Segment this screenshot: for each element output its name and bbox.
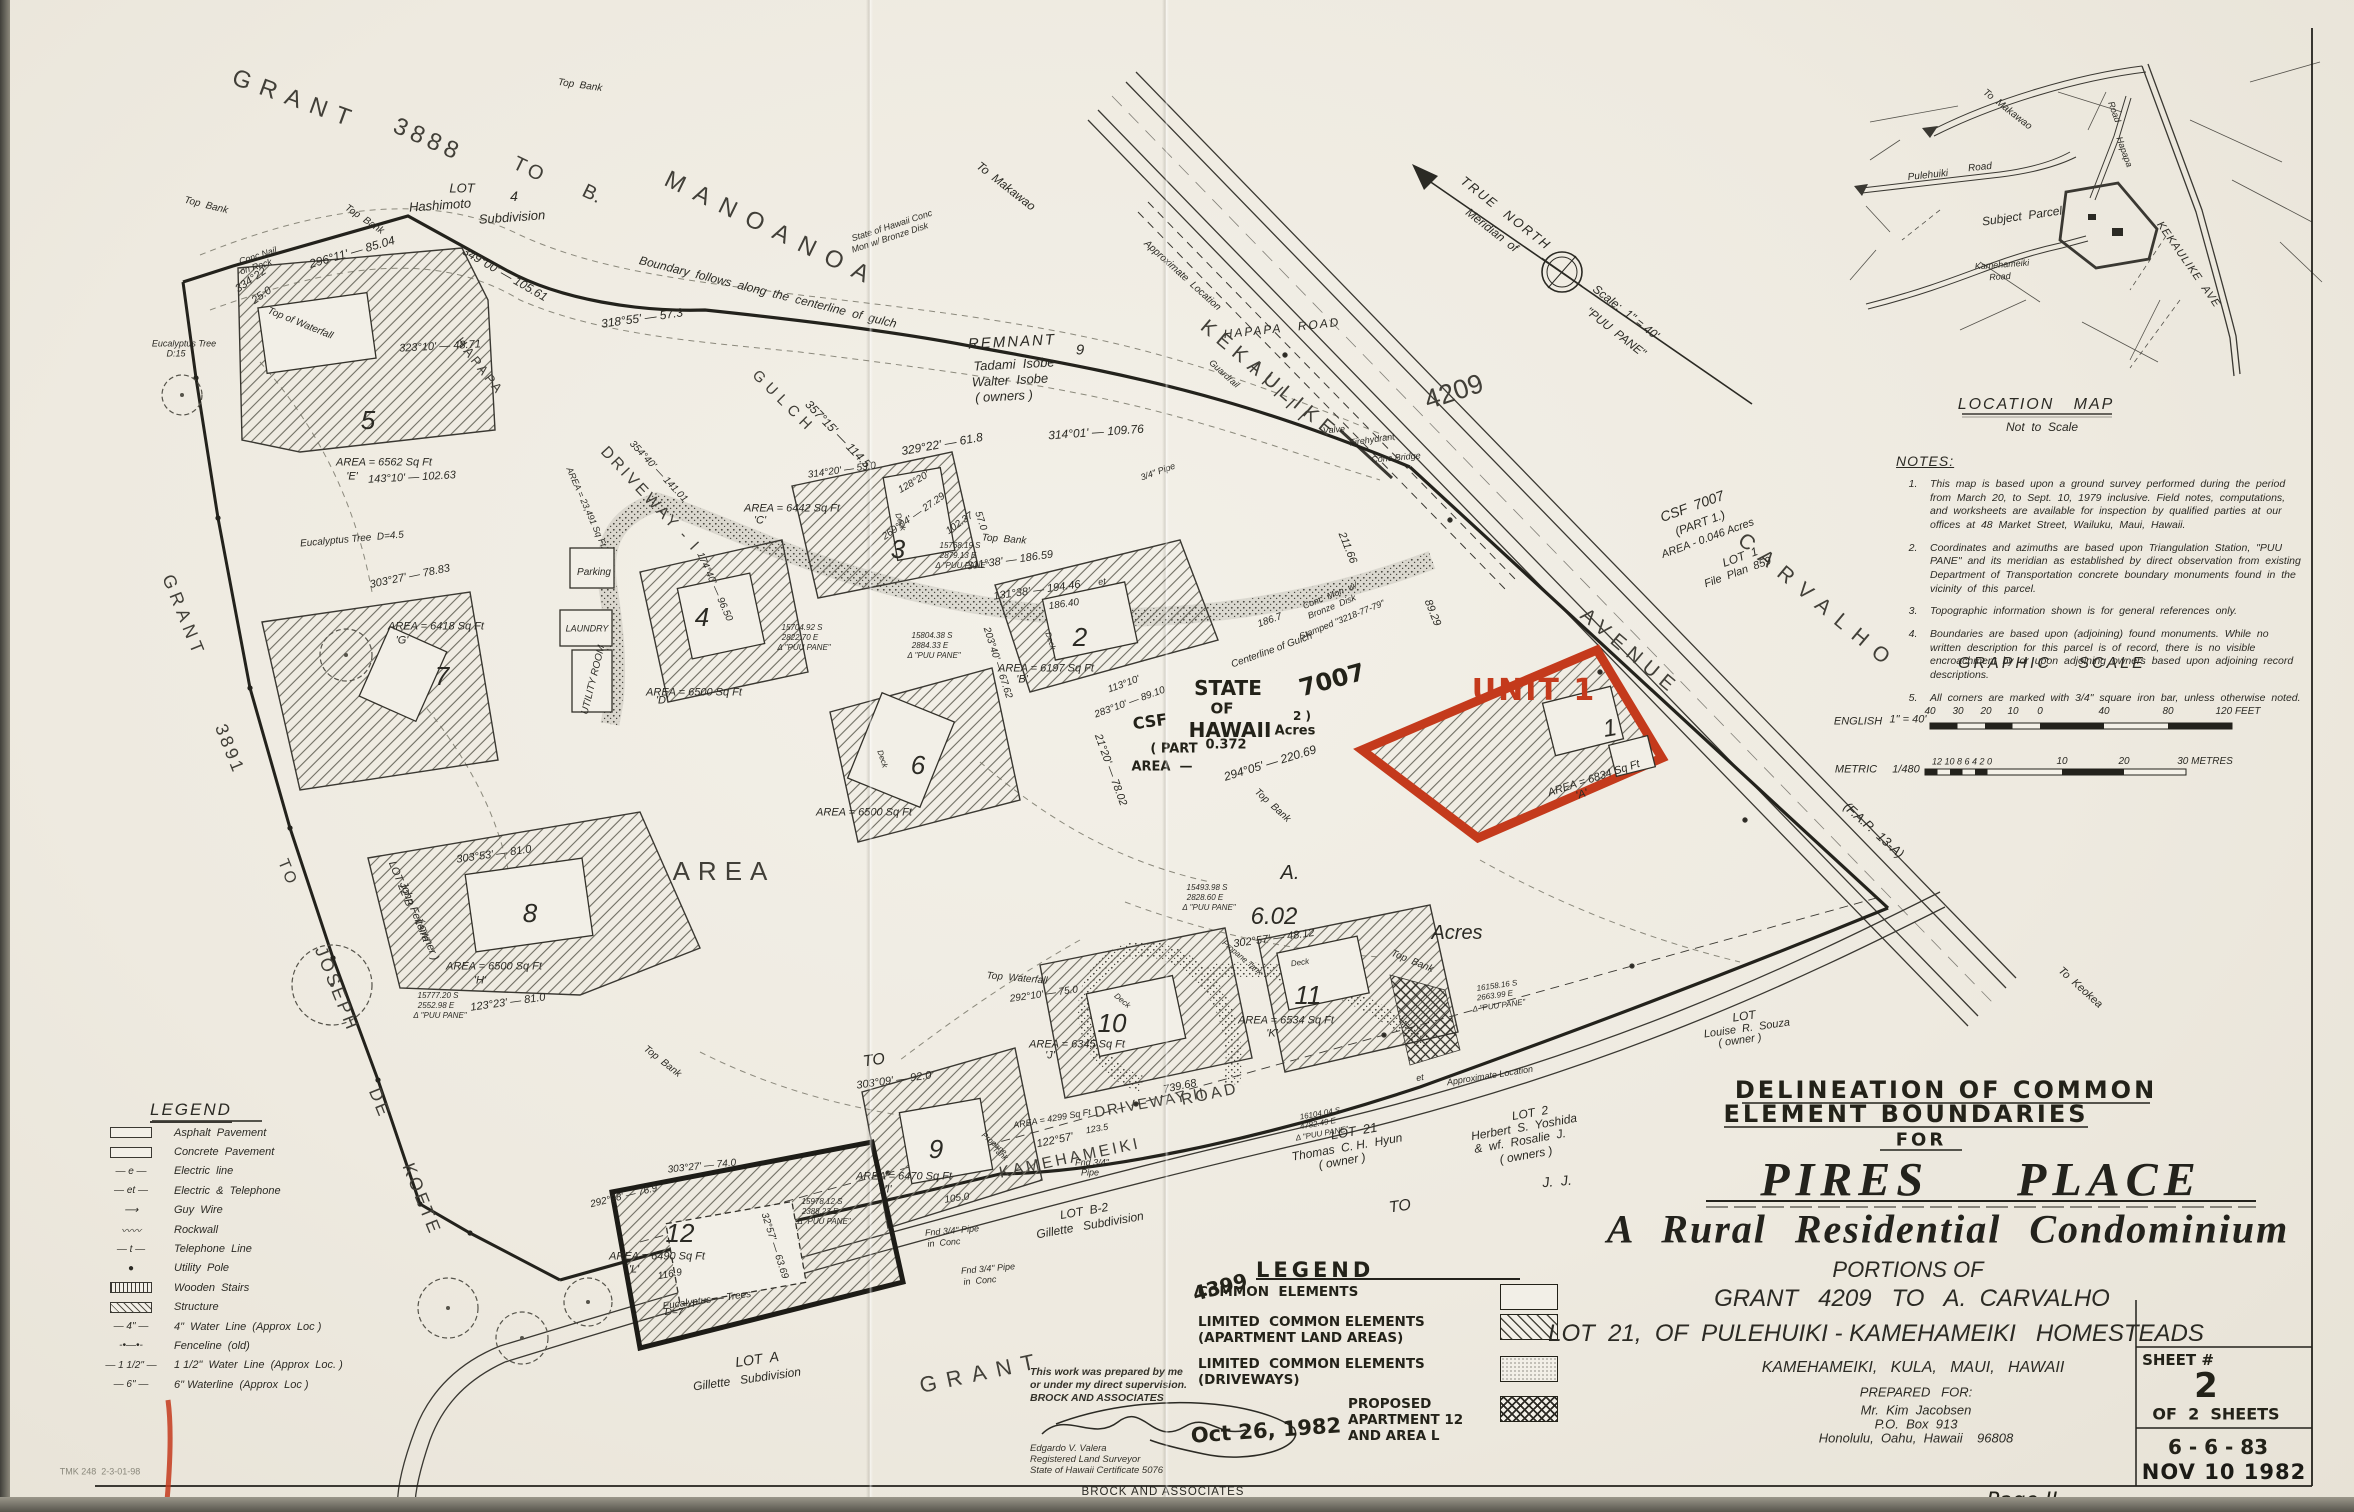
legend-label: Wooden Stairs xyxy=(174,1282,249,1294)
note-number: 1. xyxy=(1896,478,1930,533)
legend-label: Electric line xyxy=(174,1165,233,1177)
map-label: et xyxy=(1098,577,1107,587)
fenceline-symbol: -•—•- xyxy=(88,1340,174,1351)
wooden-stairs-swatch xyxy=(110,1282,152,1293)
map-label: 15777.20 S xyxy=(418,992,459,1000)
title-for: FOR xyxy=(1896,1130,1946,1151)
map-label: OF xyxy=(1211,702,1234,717)
map-label: 4 xyxy=(695,604,709,630)
surveyor-line: BROCK AND ASSOCIATES xyxy=(1030,1392,1270,1405)
legend-label: Telephone Line xyxy=(174,1243,252,1255)
map-label: AREA = 6534 Sq Ft xyxy=(1238,1016,1334,1027)
map-label: 'K' xyxy=(1266,1029,1278,1040)
map-label: 'E' xyxy=(346,472,358,483)
lot-line: LOT 21, OF PULEHUIKI - KAMEHAMEIKI HOMES… xyxy=(1548,1320,2204,1348)
map-label: 15978.12 S xyxy=(802,1198,843,1206)
prepared-for-label: PREPARED FOR: xyxy=(1860,1385,1972,1400)
map-label: ( PART xyxy=(1150,743,1197,756)
map-label: TO xyxy=(862,1052,886,1071)
map-label: 9 xyxy=(929,1136,943,1162)
map-label: 'B' xyxy=(1016,675,1028,686)
map-label: 0.372 xyxy=(1205,739,1246,752)
note-number: 3. xyxy=(1896,605,1930,619)
elements-legend-label: PROPOSED APARTMENT 12 AND AREA L xyxy=(1348,1396,1463,1444)
map-label: Parking xyxy=(577,568,611,578)
map-label: Road xyxy=(1989,272,2011,282)
map-label: 2552.98 E xyxy=(418,1002,454,1010)
notes-block: NOTES: 1.This map is based upon a ground… xyxy=(1896,452,2304,714)
map-label: AREA = 6500 Sq Ft xyxy=(446,962,542,973)
map-label: 1" = 40' xyxy=(1890,715,1927,726)
note-number: 4. xyxy=(1896,628,1930,683)
map-label: 2822.70 E xyxy=(782,634,818,642)
legend-row: ⟶Guy Wire xyxy=(88,1201,398,1220)
legend-row: — t —Telephone Line xyxy=(88,1239,398,1258)
map-label: 6 xyxy=(911,752,925,778)
legend-row: -•—•-Fenceline (old) xyxy=(88,1336,398,1355)
note-item: 3.Topographic information shown is for g… xyxy=(1896,605,2304,619)
concrete-pavement-swatch xyxy=(88,1147,174,1158)
structure-swatch xyxy=(110,1302,152,1313)
legend-row: ●Utility Pole xyxy=(88,1259,398,1278)
legend-row: Structure xyxy=(88,1298,398,1317)
north-arrow xyxy=(1412,164,1752,404)
signature-space xyxy=(1030,1405,1270,1443)
water-6in-symbol: — 6" — xyxy=(88,1379,174,1390)
map-label: 20 xyxy=(2118,757,2129,767)
survey-plat-sheet: GRANT3888TOB.MANOANOALOT4HashimotoSubdiv… xyxy=(0,0,2354,1512)
map-label: 7 xyxy=(435,663,449,689)
map-label: 15493.98 S xyxy=(1187,884,1228,892)
map-label: AREA = 6562 Sq Ft xyxy=(336,458,432,469)
map-label: D=7 xyxy=(665,1308,684,1318)
scan-edge-bottom xyxy=(0,1497,2354,1512)
portions-of: PORTIONS OF xyxy=(1832,1257,1983,1283)
prop-elements-swatch xyxy=(1500,1396,1558,1422)
map-label: Walter Isobe xyxy=(972,372,1049,389)
map-label: A. xyxy=(1281,863,1300,883)
map-label: 12 10 8 6 4 2 0 xyxy=(1932,758,1992,767)
note-text: Boundaries are based upon (adjoining) fo… xyxy=(1930,628,2304,683)
water-1p5in-symbol: — 1 1/2" — xyxy=(88,1360,174,1371)
legend-label: 6" Waterline (Approx Loc ) xyxy=(174,1379,309,1391)
map-label: AREA = 6418 Sq Ft xyxy=(388,622,484,633)
legend-label: Utility Pole xyxy=(174,1262,229,1274)
map-label: Pipe xyxy=(1081,1169,1099,1178)
map-label: 15768.19 S xyxy=(940,542,981,550)
map-label: 10 xyxy=(1098,1010,1127,1036)
map-label: CSF xyxy=(1132,712,1168,733)
map-label: 3 xyxy=(891,536,905,562)
surveyor-statement: This work was prepared by me or under my… xyxy=(1030,1366,1270,1476)
map-label: AREA — xyxy=(1131,761,1192,774)
map-label: 'D' xyxy=(656,696,668,707)
map-label: Δ "PUU PANE" xyxy=(797,1218,850,1226)
map-label: 'G' xyxy=(396,636,409,647)
legend-row: Asphalt Pavement xyxy=(88,1123,398,1142)
legend-rows: Asphalt PavementConcrete Pavement— e —El… xyxy=(88,1123,398,1394)
map-label: Δ "PUU PANE" xyxy=(413,1012,466,1020)
scan-edge-left xyxy=(0,0,10,1512)
map-label: LAUNDRY xyxy=(566,625,609,634)
surveyor-name: Edgardo V. Valera xyxy=(1030,1443,1270,1454)
location-map-lines xyxy=(1850,62,2322,417)
map-label: LOT xyxy=(449,182,474,195)
map-label: 15804.38 S xyxy=(912,632,953,640)
guy-wire-symbol: ⟶ xyxy=(88,1205,174,1216)
map-label: TMK 248 2-3-01-98 xyxy=(60,1468,141,1477)
surveyor-certificate: State of Hawaii Certificate 5076 xyxy=(1030,1465,1270,1476)
map-label: 2 xyxy=(1073,624,1087,650)
map-label: AREA = 6490 Sq Ft xyxy=(609,1252,705,1263)
note-item: 4.Boundaries are based upon (adjoining) … xyxy=(1896,628,2304,683)
map-label: 1/480 xyxy=(1892,765,1920,776)
surveyor-title: Registered Land Surveyor xyxy=(1030,1454,1270,1465)
client-city: Honolulu, Oahu, Hawaii 96808 xyxy=(1819,1431,2013,1446)
note-item: 5.All corners are marked with 3/4" squar… xyxy=(1896,692,2304,706)
legend-label: 4" Water Line (Approx Loc ) xyxy=(174,1321,321,1333)
map-label: 30 METRES xyxy=(2177,757,2233,767)
legend-label: Asphalt Pavement xyxy=(174,1127,266,1139)
title-delineation-line2: ELEMENT BOUNDARIES xyxy=(1723,1100,2088,1128)
structure-swatch xyxy=(88,1302,174,1313)
client-po-box: P.O. Box 913 xyxy=(1875,1417,1958,1432)
date-stamp: NOV 10 1982 xyxy=(2142,1460,2306,1484)
map-label: LOCATION MAP xyxy=(1958,397,2115,413)
legend-row: Wooden Stairs xyxy=(88,1278,398,1297)
asphalt-pavement-swatch xyxy=(110,1127,152,1138)
map-label: Valve xyxy=(1323,425,1346,436)
map-label: Acres xyxy=(1275,725,1316,738)
map-label: 6.02 xyxy=(1251,905,1298,929)
note-text: Coordinates and azimuths are based upon … xyxy=(1930,542,2304,597)
legend-row: Concrete Pavement xyxy=(88,1142,398,1161)
map-label: 10 xyxy=(2056,757,2067,767)
project-subtitle: A Rural Residential Condominium xyxy=(1607,1206,2289,1253)
asphalt-pavement-swatch xyxy=(88,1127,174,1138)
map-label: 'C' xyxy=(754,516,766,527)
symbol-legend: LEGEND Asphalt PavementConcrete Pavement… xyxy=(88,1100,398,1394)
common-elements-swatch xyxy=(1500,1284,1558,1310)
surveyor-line: This work was prepared by me xyxy=(1030,1366,1270,1379)
map-label: 4 xyxy=(510,189,518,203)
elements-legend-heading: LEGEND xyxy=(1256,1258,1374,1282)
map-label: AREA = 6470 Sq Ft xyxy=(856,1172,952,1183)
map-label: 5 xyxy=(361,407,375,433)
sheet-number: 2 xyxy=(2194,1366,2218,1406)
map-label: Not to Scale xyxy=(2006,421,2078,433)
map-label: 'J' xyxy=(1045,1051,1055,1062)
water-4in-symbol: — 4" — xyxy=(88,1321,174,1332)
client-name: Mr. Kim Jacobsen xyxy=(1861,1403,1972,1418)
map-label: et xyxy=(1416,1073,1425,1083)
red-pen-mark xyxy=(166,1400,170,1512)
map-label: AREA = 6500 Sq Ft xyxy=(816,808,912,819)
map-label: AREA xyxy=(673,858,776,884)
note-text: Topographic information shown is for gen… xyxy=(1930,605,2237,619)
map-label: 8 xyxy=(523,900,537,926)
legend-row: — et —Electric & Telephone xyxy=(88,1181,398,1200)
legend-label: Rockwall xyxy=(174,1224,218,1236)
map-label: 2828.60 E xyxy=(1187,894,1223,902)
map-label: 2388.23 E xyxy=(802,1208,838,1216)
locality-line: KAMEHAMEIKI, KULA, MAUI, HAWAII xyxy=(1762,1359,2065,1377)
legend-heading: LEGEND xyxy=(150,1100,232,1123)
legend-label: Structure xyxy=(174,1301,219,1313)
elements-legend-label: LIMITED COMMON ELEMENTS (APARTMENT LAND … xyxy=(1198,1314,1425,1346)
legend-label: Electric & Telephone xyxy=(174,1185,281,1197)
concrete-pavement-swatch xyxy=(110,1147,152,1158)
notes-heading: NOTES: xyxy=(1896,452,2304,470)
map-label: ENGLISH xyxy=(1834,717,1882,728)
map-label: METRIC xyxy=(1835,765,1877,776)
electric-telephone-symbol: — et — xyxy=(88,1185,174,1196)
map-label: 15704.92 S xyxy=(782,624,823,632)
map-label: REMNANT xyxy=(968,332,1057,352)
utility-pole-symbol: ● xyxy=(88,1263,174,1274)
map-label: Δ "PUU PANE" xyxy=(1182,904,1235,912)
map-label: 9 xyxy=(1076,343,1084,358)
legend-row: — 4" —4" Water Line (Approx Loc ) xyxy=(88,1317,398,1336)
map-label: D:15 xyxy=(166,350,185,359)
map-label: ( owners ) xyxy=(975,388,1033,404)
map-label: Fnd 3/4" xyxy=(1075,1159,1109,1168)
map-label: 2 ) xyxy=(1293,710,1311,722)
date-handwritten: 6 - 6 - 83 xyxy=(2168,1435,2268,1459)
rockwall-symbol: 〰〰 xyxy=(88,1222,174,1237)
legend-row: — e —Electric line xyxy=(88,1162,398,1181)
map-label: AREA = 6442 Sq Ft xyxy=(744,504,840,515)
legend-row: 〰〰Rockwall xyxy=(88,1220,398,1239)
legend-label: Fenceline (old) xyxy=(174,1340,250,1352)
note-item: 2.Coordinates and azimuths are based upo… xyxy=(1896,542,2304,597)
map-label: Δ "PUU PANE" xyxy=(907,652,960,660)
map-label: Acres xyxy=(1431,923,1482,943)
map-label: 12 xyxy=(666,1220,695,1246)
surveyor-line: or under my direct supervision. xyxy=(1030,1379,1270,1392)
drv-elements-swatch xyxy=(1500,1356,1558,1382)
map-label: AREA = 6345 Sq Ft xyxy=(1029,1040,1125,1051)
map-label: 2884.33 E xyxy=(912,642,948,650)
wooden-stairs-swatch xyxy=(88,1282,174,1293)
map-label: J. J. xyxy=(1542,1173,1573,1190)
legend-label: Concrete Pavement xyxy=(174,1146,274,1158)
map-label: 2879.13 E xyxy=(940,552,976,560)
note-number: 2. xyxy=(1896,542,1930,597)
sheet-of: OF 2 SHEETS xyxy=(2152,1405,2279,1424)
telephone-line-symbol: — t — xyxy=(88,1244,174,1255)
map-label: AREA = 6197 Sq Ft xyxy=(998,664,1094,675)
map-label: 'H' xyxy=(474,976,486,987)
map-label: UNIT 1 xyxy=(1472,676,1596,706)
map-label: Δ "PUU PANE" xyxy=(777,644,830,652)
map-label: STATE xyxy=(1194,678,1262,698)
elements-legend-label: COMMON ELEMENTS xyxy=(1198,1284,1358,1300)
map-label: 'I' xyxy=(884,1185,891,1196)
electric-line-symbol: — e — xyxy=(88,1166,174,1177)
map-label: Eucalyptus Tree xyxy=(152,340,216,349)
notes-list: 1.This map is based upon a ground survey… xyxy=(1896,478,2304,705)
project-title: PIRES PLACE xyxy=(1760,1153,2201,1208)
grant-line: GRANT 4209 TO A. CARVALHO xyxy=(1714,1285,2110,1313)
map-label: TO xyxy=(1388,1198,1412,1217)
map-label: 'L' xyxy=(629,1265,639,1276)
legend-row: — 6" —6" Waterline (Approx Loc ) xyxy=(88,1375,398,1394)
note-item: 1.This map is based upon a ground survey… xyxy=(1896,478,2304,533)
legend-row: — 1 1/2" —1 1/2" Water Line (Approx Loc.… xyxy=(88,1356,398,1375)
note-text: All corners are marked with 3/4" square … xyxy=(1930,692,2301,706)
note-number: 5. xyxy=(1896,692,1930,706)
graphic-scale-bars xyxy=(1925,723,2232,775)
map-label: 11 xyxy=(1295,982,1322,1008)
legend-label: 1 1/2" Water Line (Approx Loc. ) xyxy=(174,1359,343,1371)
legend-label: Guy Wire xyxy=(174,1204,223,1216)
note-text: This map is based upon a ground survey p… xyxy=(1930,478,2304,533)
